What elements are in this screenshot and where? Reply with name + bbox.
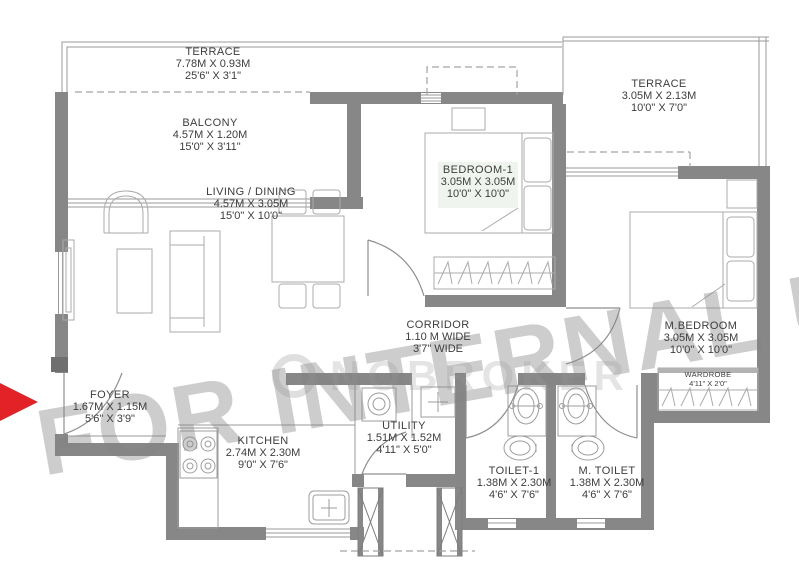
coffee-table [117,249,152,313]
furniture-layer [63,108,758,410]
bedroom1-door [368,240,424,296]
room-label-utility: UTILITY 1.51M X 1.52M 4'11" X 5'0" [367,420,442,456]
washing-machine-icon [362,388,396,421]
room-dim-imperial: 5'6" X 3'9" [73,413,148,425]
toilet1-wc [504,436,536,460]
room-name: LIVING / DINING [206,186,296,198]
room-dim-imperial: 9'0" X 7'6" [226,459,301,471]
service-shafts [358,488,462,556]
utility-sink-icon [421,387,455,417]
room-label-terrace-top: TERRACE 7.78M X 0.93M 25'6" X 3'1" [176,46,251,82]
kitchen-sink-icon [309,491,349,524]
room-name: TERRACE [622,78,697,90]
room-dim-imperial: 4'6" X 7'6" [477,489,552,501]
room-dim-imperial: 15'0" X 3'11" [173,141,248,153]
armchair [104,191,148,233]
room-label-toilet1: TOILET-1 1.38M X 2.30M 4'6" X 7'6" [477,465,552,501]
room-label-bedroom1: BEDROOM-1 3.05M X 3.05M 10'0" X 10'0" [441,164,516,200]
room-dim-metric: 1.10 M WIDE [405,331,470,343]
room-name: KITCHEN [226,435,301,447]
room-dim-imperial: 4'11" X 5'0" [367,444,442,456]
door-jamb [51,357,68,372]
room-name: FOYER [73,389,148,401]
room-dim-imperial: 4'6" X 7'6" [570,489,645,501]
floor-plan: FOR INTERNAL US NOBROKER TERRACE 7.78M X… [0,0,799,572]
room-dim-metric: 7.78M X 0.93M [176,58,251,70]
room-name: BEDROOM-1 [441,164,516,176]
mtoilet-washbasin [558,386,596,436]
room-label-mbedroom: M.BEDROOM 3.05M X 3.05M 10'0" X 10'0" [664,320,739,356]
room-name: BALCONY [173,117,248,129]
room-dim-imperial: 10'0" X 7'0" [622,102,697,114]
mbedroom-door [566,308,620,364]
room-label-wardrobe: WARDROBE 4'11" X 2'0" [684,371,731,388]
mtoilet-door [585,385,637,438]
room-name: M. TOILET [570,465,645,477]
room-label-living-dining: LIVING / DINING 4.57M X 3.05M 15'0" X 10… [206,186,296,222]
bedroom1-wardrobe [434,257,555,289]
room-dim-metric: 3.05M X 3.05M [441,176,516,188]
entry-arrow-icon [0,383,38,421]
room-dim-imperial: 10'0" X 10'0" [441,188,516,200]
room-name: TOILET-1 [477,465,552,477]
room-dim-metric: 1.51M X 1.52M [367,432,442,444]
room-name: CORRIDOR [405,319,470,331]
room-dim-metric: 1.67M X 1.15M [73,401,148,413]
toilet1-washbasin [508,386,546,436]
room-dim-imperial: 25'6" X 3'1" [176,70,251,82]
toilet1-door [466,385,518,438]
room-dim-metric: 3.05M X 2.13M [622,90,697,102]
room-label-mtoilet: M. TOILET 1.38M X 2.30M 4'6" X 7'6" [570,465,645,501]
room-dim-metric: 3.05M X 3.05M [664,332,739,344]
room-name: TERRACE [176,46,251,58]
room-dim-metric: 1.38M X 2.30M [570,477,645,489]
mbedroom-bed [630,180,757,308]
sofa [170,231,220,332]
room-label-corridor: CORRIDOR 1.10 M WIDE 3'7" WIDE [405,319,470,355]
mtoilet-wc [572,436,604,460]
room-label-terrace-right: TERRACE 3.05M X 2.13M 10'0" X 7'0" [622,78,697,114]
room-dim-imperial: 3'7" WIDE [405,343,470,355]
room-dim-metric: 4.57M X 1.20M [173,129,248,141]
room-label-foyer: FOYER 1.67M X 1.15M 5'6" X 3'9" [73,389,148,425]
room-name: UTILITY [367,420,442,432]
room-dim-imperial: 4'11" X 2'0" [684,380,731,389]
room-dim-metric: 1.38M X 2.30M [477,477,552,489]
stove-icon [180,431,217,478]
room-dim-imperial: 15'0" X 10'0" [206,210,296,222]
room-label-kitchen: KITCHEN 2.74M X 2.30M 9'0" X 7'6" [226,435,301,471]
room-dim-imperial: 10'0" X 10'0" [664,344,739,356]
room-label-balcony: BALCONY 4.57M X 1.20M 15'0" X 3'11" [173,117,248,153]
room-dim-metric: 4.57M X 3.05M [206,198,296,210]
room-dim-metric: 2.74M X 2.30M [226,447,301,459]
room-name: M.BEDROOM [664,320,739,332]
